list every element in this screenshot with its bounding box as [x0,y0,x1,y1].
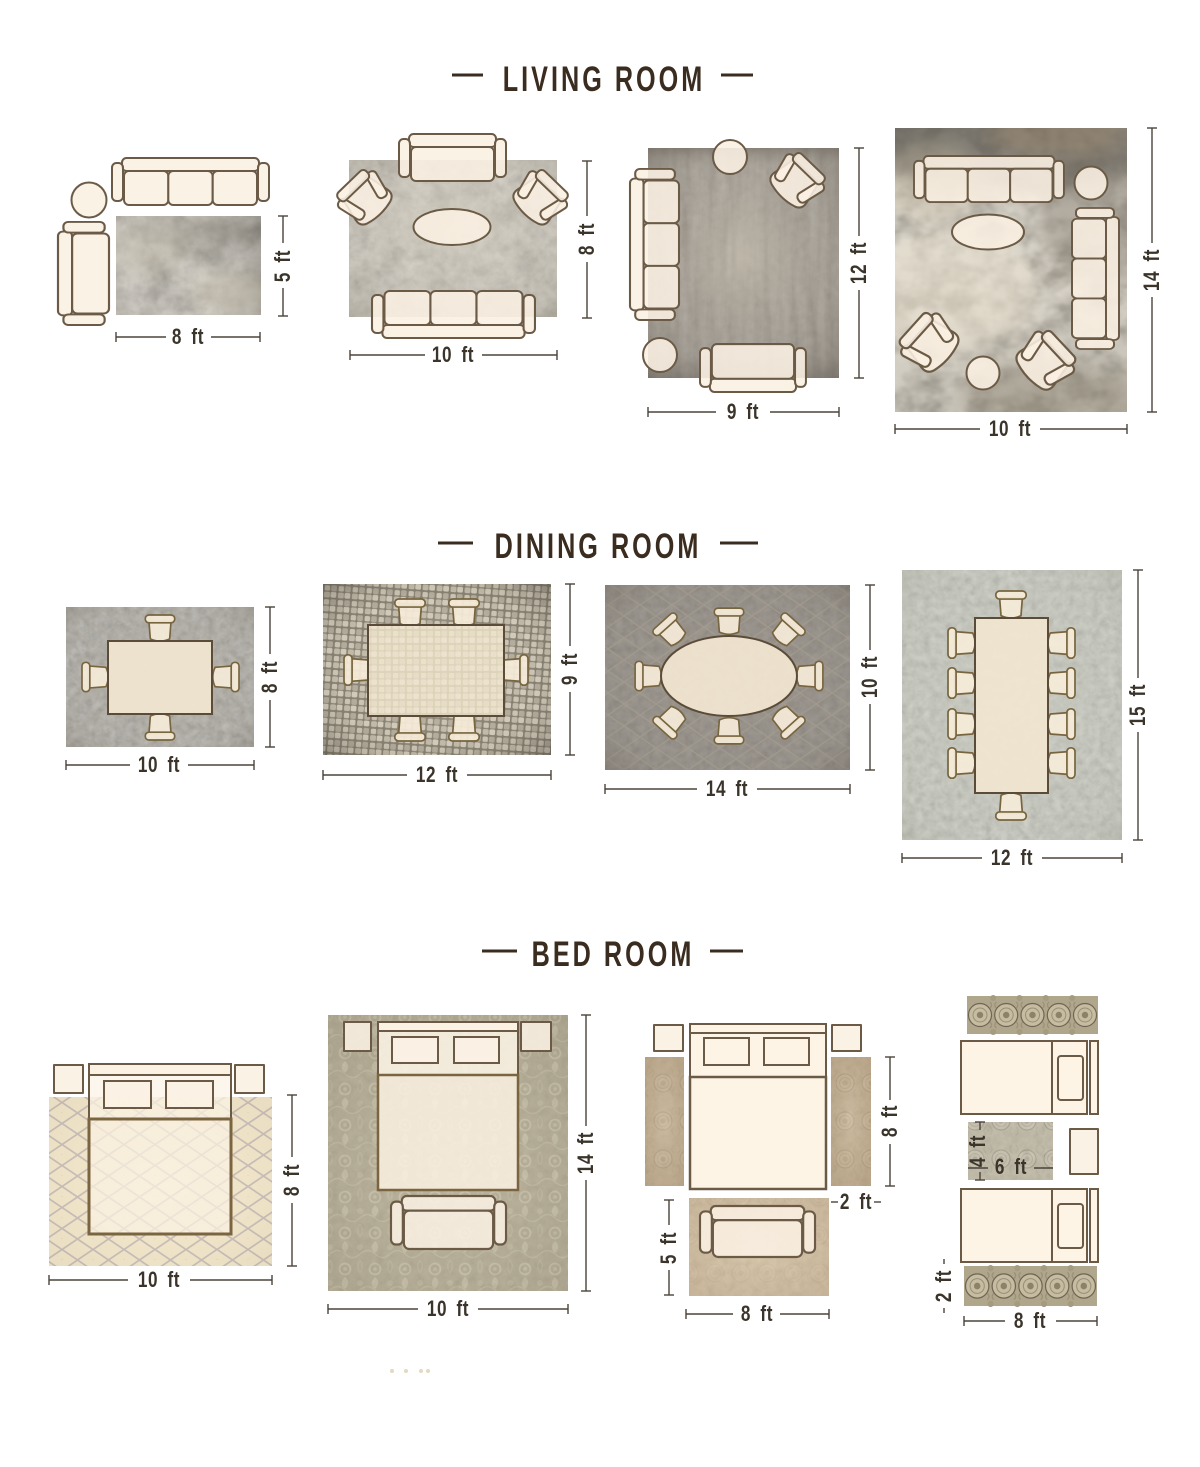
svg-text:10 ft: 10 ft [138,1268,180,1293]
svg-text:8 ft: 8 ft [741,1302,773,1327]
svg-text:14 ft: 14 ft [574,1132,599,1174]
svg-text:9 ft: 9 ft [727,400,759,425]
svg-text:10 ft: 10 ft [427,1297,469,1322]
svg-text:8 ft: 8 ft [172,325,204,350]
svg-text:15 ft: 15 ft [1126,684,1151,726]
svg-text:10 ft: 10 ft [432,343,474,368]
svg-text:2 ft: 2 ft [932,1270,957,1302]
svg-text:4 ft: 4 ft [966,1135,991,1167]
svg-text:12 ft: 12 ft [991,846,1033,871]
svg-text:8 ft: 8 ft [258,661,283,693]
svg-text:12 ft: 12 ft [416,763,458,788]
svg-text:14 ft: 14 ft [706,777,748,802]
svg-text:8 ft: 8 ft [878,1105,903,1137]
svg-text:LIVING ROOM: LIVING ROOM [503,60,706,99]
svg-text:6 ft: 6 ft [995,1155,1027,1180]
svg-text:8 ft: 8 ft [280,1164,305,1196]
svg-text:2 ft: 2 ft [840,1190,872,1215]
svg-text:8 ft: 8 ft [1014,1309,1046,1334]
svg-text:12 ft: 12 ft [847,242,872,284]
svg-text:10 ft: 10 ft [858,656,883,698]
svg-text:9 ft: 9 ft [558,653,583,685]
svg-text:14 ft: 14 ft [1140,249,1165,291]
svg-text:10 ft: 10 ft [138,753,180,778]
svg-text:DINING ROOM: DINING ROOM [495,527,702,566]
svg-text:5 ft: 5 ft [271,250,296,282]
svg-text:8 ft: 8 ft [575,223,600,255]
svg-text:10 ft: 10 ft [989,417,1031,442]
svg-text:BED ROOM: BED ROOM [532,935,695,974]
svg-text:5 ft: 5 ft [657,1232,682,1264]
